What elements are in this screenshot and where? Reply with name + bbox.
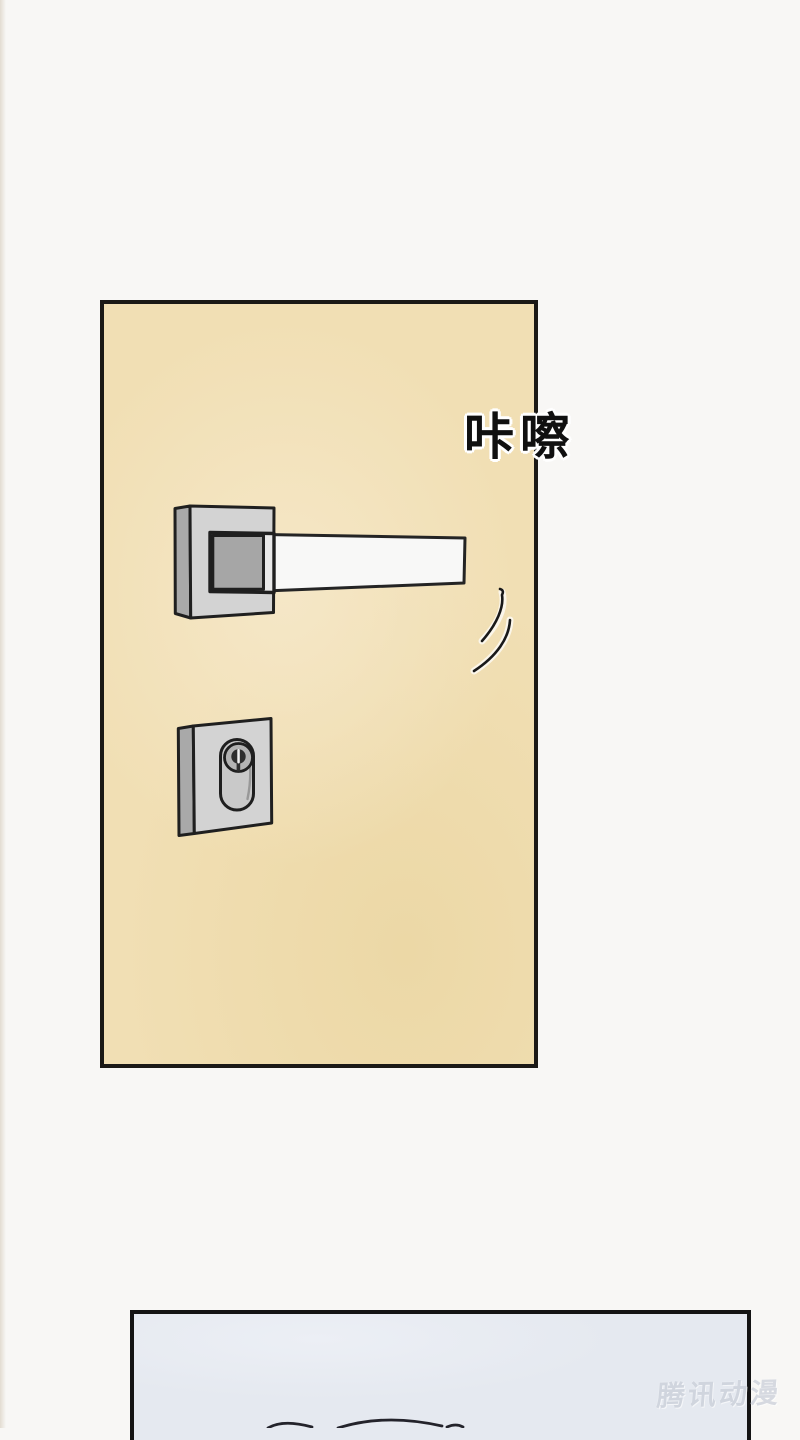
tencent-comics-watermark-icon: 腾讯动漫 (656, 1379, 783, 1410)
sfx-text: 咔嚓 (464, 412, 576, 462)
panel-bottom-partial (130, 1310, 751, 1440)
comic-page: { "page": { "width": 800, "height": 1428… (0, 0, 800, 1428)
page-left-edge-shading (0, 0, 6, 1428)
